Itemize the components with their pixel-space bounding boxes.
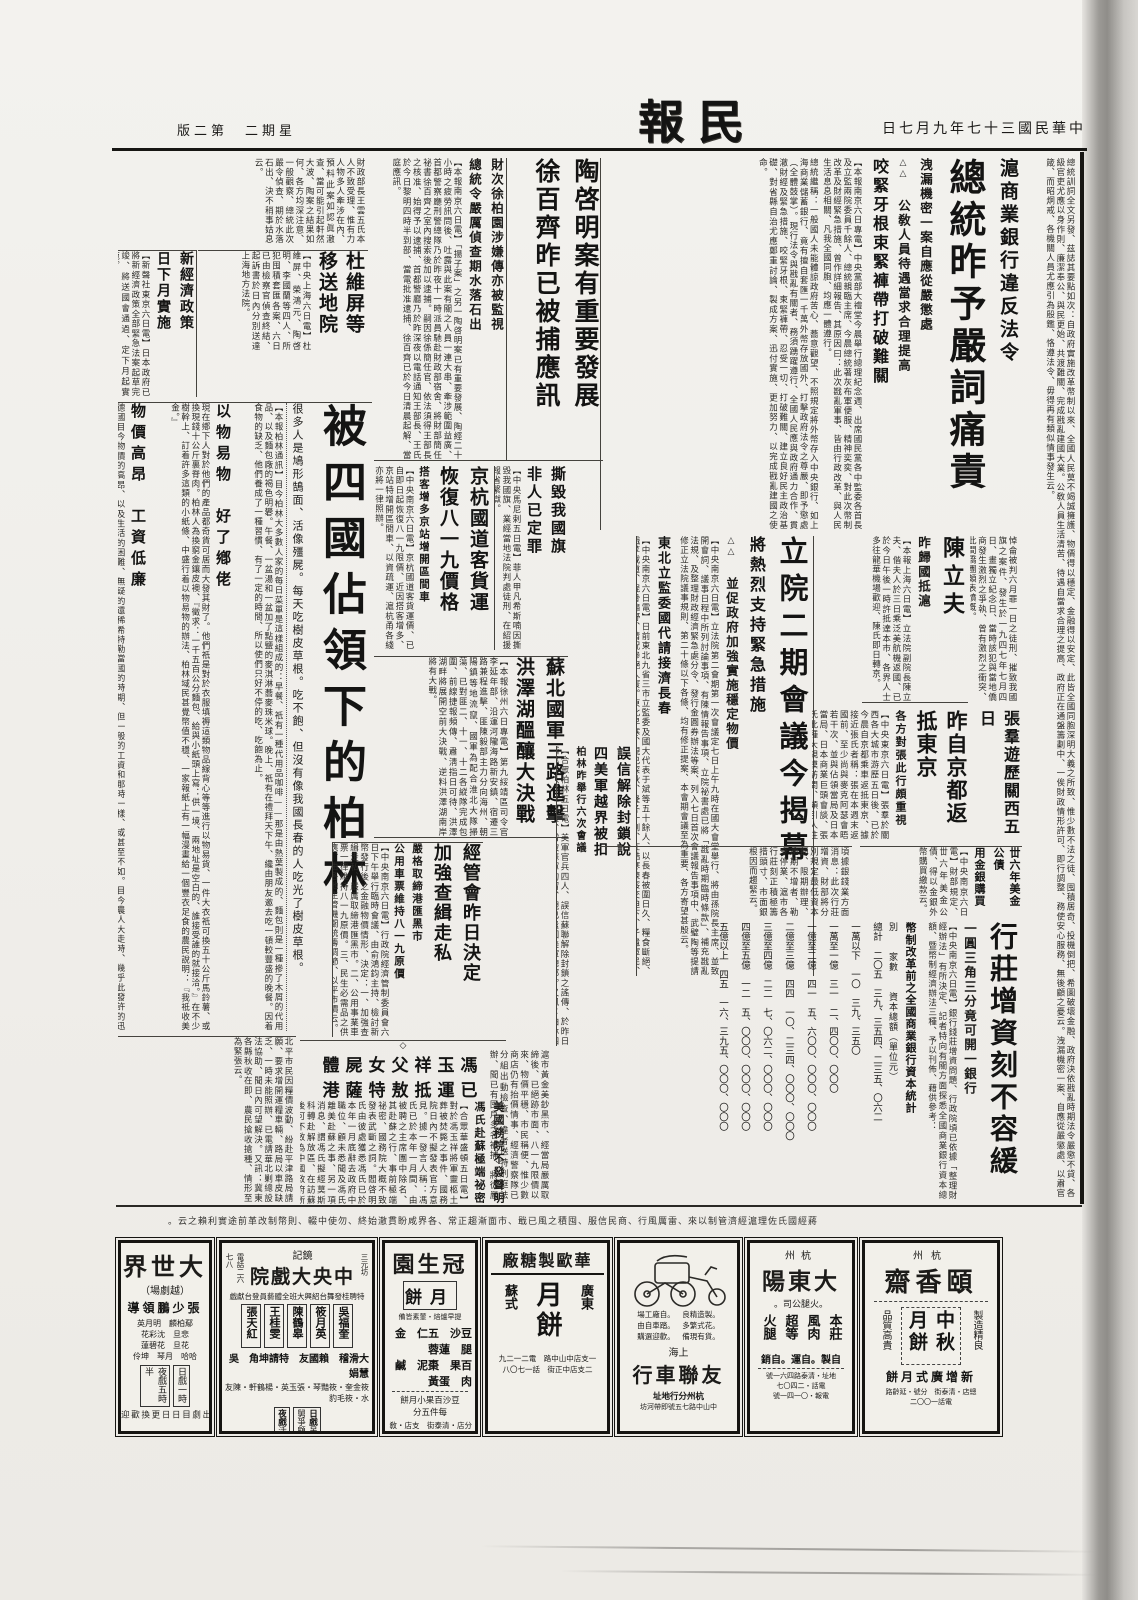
lead-headline: 總統昨予嚴詞痛責 xyxy=(938,158,992,530)
issue-date: 中華民國三十七年九月七日 xyxy=(880,118,1086,144)
zhongyang-night-label: 夜戲 xyxy=(277,1409,287,1426)
road-subhead: 搭客增多京站增開區間車 xyxy=(417,466,432,650)
du-article: 杜維屏等移送地院 【中央上海六日電】杜維屏、榮鴻元、陶啓明、李國蘭等四人、所犯囤… xyxy=(198,250,368,351)
japan-econ-body: 【新聲社東京六日電】日本政府已將新經濟政策全部緊急法案起草完竣、將送國會通過、定… xyxy=(120,251,150,397)
youlian-city: 上海 xyxy=(669,1344,689,1359)
bond-headline-1: 丗六年美金公債 xyxy=(990,847,1022,917)
dashijie-director: 張少鵬領導 xyxy=(127,1299,202,1316)
page-fold-shadow-2 xyxy=(560,1570,1100,1576)
du-body: 【中央上海六日電】杜維屏、榮鴻元、陶啓明、李國蘭等四人、所犯囤積套匯各案、六日已… xyxy=(215,251,311,351)
lead-kicker: 滬商業銀行違反法令 xyxy=(995,158,1022,530)
bond-article: 丗六年美金公債 用金銀購買 【中央南京六日電】財部規定、丗六年美金公債、得以金銀… xyxy=(860,846,1022,917)
bank-table-headers: 別 家數 資本總額（單位元） xyxy=(886,922,899,1200)
feng-headline-2: 已運抵敖特薩港 xyxy=(300,1076,506,1101)
bottom-rule xyxy=(116,1205,1082,1207)
zhongyang-day-cell: 日戲吊打國舅爭顧鼎臣 xyxy=(293,1407,321,1434)
zhongyang-header: 三元坊 鏡記 中央大戲院 電話二六七八 xyxy=(224,1247,370,1289)
subei-body: 【本報徐州六日專電】第九綏靖區司令官李延年部、沿運河隴海路新安鎮、宿遷三路兼程進… xyxy=(392,657,508,837)
bank-row-3: 一億至二億 四一 五、六〇〇、〇〇〇、〇〇〇 xyxy=(803,922,817,1200)
dadongyang-line: 自製。自運。自銷 xyxy=(761,1351,841,1366)
bank-table-title: 幣制改革前之全國商業銀行資本統計 xyxy=(902,922,918,1200)
bank-row-6: 四億至五億 一二 五、〇〇〇、〇〇〇、〇〇〇 xyxy=(737,922,751,1200)
feng-headline-1: 馮玉祥父女屍體 xyxy=(300,1051,506,1076)
zhongyang-special: 大滑稽 賴國友 特請坤角 吳慧娟 xyxy=(225,1350,369,1380)
smuggle-subhead-1: 嚴格取締港匯黑市 xyxy=(410,843,425,1037)
chen-article: 陳立夫 昨歸國抵滬 【本報上海六日電】立法院副院長陳立夫、偕夫人於三日乘泛美航機… xyxy=(862,536,968,703)
youlian-bullets-3: 。貨有現備 。歡迎選購 xyxy=(637,1331,720,1342)
dashijie-day-label: 日戲 xyxy=(176,1367,186,1385)
dadongyang-product-3: 超等 xyxy=(781,1314,800,1348)
dashijie-cast-3: 花旦 花碧蓮 xyxy=(141,1340,189,1351)
dashijie-cast-1: 鄢柏麟 明月英 xyxy=(137,1318,193,1329)
zhongyang-row3: 筱金奎・筱豔琴・張玉英・楊鶴軒・陳友水・筱毛豹 xyxy=(225,1382,369,1404)
huaou-middle: 廣東 月餅 蘇式 xyxy=(500,1281,595,1347)
lead-triangle-marks: △△ xyxy=(898,158,908,180)
dadongyang-subtitle: 。火腿公司。 xyxy=(774,1297,828,1310)
bank-article: 行莊增資刻不容緩 一圓三角三分竟可開一銀行 【中央南京六日電】銀行錢莊增資問題、… xyxy=(600,922,1022,1200)
dashijie-day-cell: 日戲一時 xyxy=(173,1365,190,1407)
flag-headline-1: 撕毀我國旗 xyxy=(548,466,569,650)
zhongyang-tag: 鏡記 xyxy=(250,1247,355,1262)
bank-pre-brief: 頃據銀錢業方面消息：此次行莊增資、財部將分別規定最低資本額、限期辦理、逾期不增者… xyxy=(600,846,852,917)
smuggle-subhead-2: 公用車票維持八一九原價 xyxy=(392,843,407,1037)
bank-row-4: 二億至三億 四四 一〇、二三四、〇〇〇、〇〇〇 xyxy=(781,922,795,1200)
ly-triangle-marks: △△ xyxy=(726,536,736,558)
yixiangzhai-middle: 製造精良 中秋月餅 品質高貴 xyxy=(878,1307,984,1365)
zhongyang-night-cell: 夜戲活財神 xyxy=(274,1407,290,1434)
dashijie-note: 本院演員自本日起出劇目日日更換歡迎各界人士蒞臨指敎 xyxy=(118,1410,212,1427)
topleft-brief: 財政部長王雲五氏本人不致受理、惟有力人物多人牽涉在內、預料此案如認眞澈查、當可能… xyxy=(118,158,368,244)
dadongyang-products: 本莊 風肉 超等 火腿 xyxy=(759,1314,844,1348)
chen-side-text: 悼侖被判六月罪一日之徒刑、摧致我國旗之案件、發生於一九四七年七月四日、畫獨立紀念… xyxy=(970,536,1017,702)
zhongyang-stars: 吳福奎 筱月英 陳鶴皋 王桂雯 張天紅 xyxy=(241,1304,353,1348)
bottomleft-brief: 北平市民因糧價波動、紛赴平津路局請願、要求增開運糧車輛、路局以車皮缺乏、一時未能… xyxy=(118,1036,296,1203)
chen-side-brief: 悼侖被判六月罪一日之徒刑、摧致我國旗之案件、發生於一九四七年七月四日、畫獨立紀念… xyxy=(970,536,1020,702)
huaou-branch-2: 二支店中正街 話一七〇八 xyxy=(503,1364,593,1375)
ad-dadongyang: 杭州 大東陽 。火腿公司。 本莊 風肉 超等 火腿 自製。自運。自銷 地址・清泰… xyxy=(747,1240,855,1434)
dadongyang-phone: 電話・二四〇七 xyxy=(777,1381,826,1391)
dadongyang-product-2: 風肉 xyxy=(803,1314,822,1348)
smuggle-headline-2: 加強查緝走私 xyxy=(428,843,454,1037)
huaou-product: 月餅 xyxy=(529,1281,566,1347)
japan-economy-article: 新經濟政策 日下月實施 【新聲社東京六日電】日本政府已將新經濟政策全部緊急法案起… xyxy=(118,250,197,397)
smuggle-body: 【中央南京六日電】行政院經濟管制委員會六日下午舉行臨時會議、由俞鴻鈞主持、檢討新… xyxy=(347,843,389,1037)
flag-headline-2: 非人已定罪 xyxy=(524,466,545,650)
road-body: 【中央南京六日電】京杭國道客貨運價、已自即日起恢復八一九限價、近因搭客增多、京站… xyxy=(380,466,414,650)
zhongyang-star-2: 筱月英 xyxy=(310,1304,330,1348)
zhongyang-phone: 電話二六七八 xyxy=(224,1253,246,1283)
youlian-bullets-1: 。製造精良 。自廠工場 xyxy=(637,1309,720,1320)
du-headline: 杜維屏等移送地院 xyxy=(314,251,368,351)
newspaper-page: 中華民國三十七年九月七日 民報 星期二 第二版 總統訓詞全文另發、茲誌其要點如次… xyxy=(0,0,1138,1600)
lead-subhead-1: 洩漏機密一案自應從嚴懲處 xyxy=(916,158,935,530)
youlian-footer-1: 杭州分行地址 xyxy=(653,1390,704,1402)
berlin4-subhead: 柏林昨舉行六次會議 xyxy=(572,746,587,1046)
bottom-strip-text: 蔣經國氏佐理滬經濟管制以來、雷厲風行、商民信服、囤積之風已戢、市面漸趨正常、各界… xyxy=(118,1214,818,1234)
bank-headline: 行莊增資刻不容緩 xyxy=(982,922,1022,1200)
flag-article: 撕毀我國旗 非人已定罪 【中央馬尼剌五日電】菲人甲凡希斯喃因撕毀我國旗、業經當地… xyxy=(494,466,569,650)
feng-subhead-1: 美國務院不發聲明 xyxy=(490,1101,506,1205)
guanshengyuan-price: 每件五分 xyxy=(413,1406,447,1418)
guanshengyuan-product: 月餅 xyxy=(403,1281,457,1310)
guanshengyuan-branches: 分店・清泰街 支店・敎仁橋 xyxy=(388,1420,472,1434)
ly-subhead-2: 並促政府加強實施穩定物價 xyxy=(724,577,739,751)
dadongyang-name: 大東陽 xyxy=(762,1262,840,1296)
berlin-body-3: 德國目今物價的高昂、以及生活的困難、無疑的還稀希特勒當國的時期、但一般的工資和那… xyxy=(118,403,125,1031)
yixiangzhai-bottom: 新增廣式月餅 xyxy=(886,1368,976,1385)
yixiangzhai-right-tag: 製造精良 xyxy=(969,1310,984,1362)
chen-body: 【本報上海六日電】立法院副院長陳立夫、偕夫人於三日乘泛美航機返國、已於今日午後一… xyxy=(865,536,911,702)
berlin-subhead-b: 物價高昂 工資低廉 xyxy=(128,403,149,1031)
dashijie-cast-2: 悲旦 沈彩花 xyxy=(141,1329,189,1340)
lead-body-2: 總統繼稱：一般國人未能體諒政府苦心、蕎意觀望、不照規定將外幣存入中央銀行、如上海… xyxy=(757,158,818,530)
berlin-body-1: 【本報柏林通訊】目今柏林大多數人家的每日菜單是這樣組成的：早餐、祇有一種代用品咖… xyxy=(237,403,283,1031)
yixiangzhai-left-tag: 品質高貴 xyxy=(878,1310,893,1362)
road-headline-2: 恢復八一九價格 xyxy=(435,466,462,650)
dadongyang-addr: 地址・清泰路四六一號 xyxy=(766,1371,836,1381)
tao-subhead-1: 財次徐柏園涉嫌傳亦被監視 xyxy=(487,158,506,460)
yixiangzhai-region: 杭州 xyxy=(913,1247,949,1262)
dadongyang-divider xyxy=(758,1368,844,1369)
huaou-style-2: 蘇式 xyxy=(500,1284,519,1344)
zhongyang-star-5: 張天紅 xyxy=(241,1304,261,1348)
bank-body: 【中央南京六日電】銀行錢莊增資問題、行政院頃已依據「整理財經辦法」有所決定、記者… xyxy=(921,922,957,1200)
lead-body: 【本報南京六日專電】中央黨部大禮堂今晨舉行總理紀念週、出席國民黨各中監委各首長及… xyxy=(600,158,865,530)
zhang-headline-1: 張羣遊歷關西五日 xyxy=(974,710,1022,840)
lead-subhead-3: 咬緊牙根束緊褲帶打破難關 xyxy=(868,158,891,530)
tao-article-heads: 陶啓明案有重要發展 徐百齊昨已被捕應訊 xyxy=(506,158,603,461)
chen-subhead: 昨歸國抵滬 xyxy=(914,536,933,702)
dadongyang-region: 杭州 xyxy=(785,1247,817,1262)
guanshengyuan-small-cake: 豆沙百果小月餅 xyxy=(400,1394,460,1406)
dadongyang-wire: 電報・〇一四一號 xyxy=(773,1391,829,1401)
lead-subhead-2-col: △△ 公敎人員待遇當求合理提高 xyxy=(894,158,913,530)
yixiangzhai-footer-1: 總店・清泰街 分號・延齡路 xyxy=(886,1387,977,1397)
japan-econ-headline-1: 新經濟政策 xyxy=(176,251,196,397)
bank-row-total: 總計 二〇五 三九、三五四、二三五、〇六二 xyxy=(869,922,883,1200)
dadongyang-product-4: 火腿 xyxy=(759,1314,778,1348)
zhongyang-star-3: 陳鶴皋 xyxy=(287,1304,307,1348)
feng-subhead-2: 馮氏赴蘇極端祕密 xyxy=(471,1101,487,1205)
dashijie-cast-4: 哈哈 月琴 坤伶 xyxy=(133,1351,197,1362)
topleft-brief-text: 財政部長王雲五氏本人不致受理、惟有力人物多人牽涉在內、預料此案如認眞澈查、當可能… xyxy=(253,158,365,244)
yixiangzhai-product: 中秋月餅 xyxy=(901,1307,961,1365)
subei-headline-2: 洪澤湖醞釀大決戰 xyxy=(511,657,538,837)
zhongyang-night-show: 活財神 xyxy=(277,1426,287,1434)
youlian-footer-2: 中山中路七五號即帶河坊 xyxy=(640,1402,717,1412)
yixiangzhai-name: 頤香齋 xyxy=(884,1262,977,1299)
bank-row-5: 三億至四億 二二 七、〇六二、〇〇〇、〇〇〇 xyxy=(759,922,773,1200)
japan-econ-headline-2: 日下月實施 xyxy=(153,251,173,397)
lead-story-strip: 總統訓詞全文另發、茲誌其要點如次：自政府實施改革幣制以來、全國人民莫不竭誠擁護、… xyxy=(1024,158,1078,1198)
dashijie-day-time: 一時 xyxy=(176,1385,186,1403)
ad-youlian: 。製造精良 。自廠工場 。花式繁多 。踏車自由 。貨有現備 。歡迎選購 上海 友… xyxy=(617,1240,740,1434)
weekday-edition: 星期二 第二版 xyxy=(116,120,296,144)
zhongyang-day-label: 日戲 xyxy=(308,1409,318,1426)
ad-guanshengyuan: 冠生園 月餅 提早爐焙・葷素皆備 豆沙 五仁 金腿 蓮蓉 百果 棗泥 鹹肉 蛋黃… xyxy=(382,1240,478,1434)
chen-headline: 陳立夫 xyxy=(936,536,968,702)
dashijie-name: 大世界 xyxy=(123,1247,207,1282)
huaou-name: 華歐製糖廠 xyxy=(491,1247,604,1275)
lead-body-1: 【本報南京六日專電】中央黨部大禮堂今晨舉行總理紀念週、出席國民黨各中監委各首長及… xyxy=(821,158,862,530)
huaou-branch-1: 一支店中山中路 電二一二九 xyxy=(499,1353,597,1364)
zhongyang-star-4: 王桂雯 xyxy=(264,1304,284,1348)
ad-huaou: 華歐製糖廠 廣東 月餅 蘇式 一支店中山中路 電二一二九 二支店中正街 話一七〇… xyxy=(485,1240,610,1434)
zhongyang-shows: 日戲吊打國舅爭顧鼎臣 夜戲活財神 xyxy=(274,1407,321,1434)
dashijie-night-label: 夜戲 xyxy=(156,1367,166,1385)
feng-article: ◇ 馮玉祥父女屍體 已運抵敖特薩港 美國務院不發聲明 馮氏赴蘇極端祕密 【合眾華… xyxy=(300,1040,506,1205)
lead-article: 滬商業銀行違反法令 總統昨予嚴詞痛責 洩漏機密一案自應從嚴懲處 △△ 公敎人員待… xyxy=(868,158,1022,530)
bond-body: 【中央南京六日電】財部規定、丗六年美金公債、得以金銀外幣購買繳款云。 xyxy=(860,847,968,917)
smuggle-article: 經管會昨日決定 加強查緝走私 嚴格取締港匯黑市 公用車票維持八一九原價 【中央南… xyxy=(332,842,483,1037)
feng-lower: 美國務院不發聲明 馮氏赴蘇極端祕密 【合眾華盛頓五日電】對於馮玉祥將軍靈柩土葬被… xyxy=(300,1101,506,1205)
tao-headline-2: 徐百齊昨已被捕應訊 xyxy=(528,158,564,460)
zhang-subhead: 各方對張此行頗重視 xyxy=(892,710,908,840)
bank-pre-text: 頃據銀錢業方面消息：此次行莊增資、財部將分別規定最低資本額、限期辦理、逾期不增者… xyxy=(747,847,849,917)
guanshengyuan-divider xyxy=(392,1391,468,1392)
bank-row-1: 一萬以下 一〇 三九、三五〇 xyxy=(847,922,861,1200)
flag-body: 【中央馬尼剌五日電】菲人甲凡希斯喃因撕毀我國旗、業經當地法院判處徒刑、在紹援報省… xyxy=(494,466,521,650)
zhongyang-address: 三元坊 xyxy=(359,1253,370,1283)
berlin-lede: 很多人是鳩形鵠面、活像殭屍。每天吃樹皮草根。吃不飽、但沒有像我國長春的人吃光了樹… xyxy=(286,403,305,1031)
dashijie-subtitle: （越劇場） xyxy=(140,1282,190,1297)
lead-subhead-2: 公敎人員待遇當求合理提高 xyxy=(896,199,911,373)
zhongyang-star-1: 吳福奎 xyxy=(333,1304,353,1348)
bank-subhead: 一圓三角三分竟可開一銀行 xyxy=(960,922,979,1200)
zhang-headline-2: 昨自京都返抵東京 xyxy=(911,710,971,840)
ad-yixiangzhai: 杭州 頤香齋 製造精良 中秋月餅 品質高貴 新增廣式月餅 總店・清泰街 分號・延… xyxy=(862,1240,1000,1434)
huaou-style-1: 廣東 xyxy=(576,1284,595,1344)
feng-diamond-top: ◇ xyxy=(300,1041,506,1051)
feng-body: 【合眾華盛頓五日電】對於馮玉祥將軍靈柩土葬被焚斃之事件、國務院日內不擬發表官方意… xyxy=(328,1101,468,1205)
masthead: 民報 xyxy=(608,86,788,146)
yixiangzhai-footer-2: 電話一〇〇二 xyxy=(910,1397,952,1407)
advertisement-row: 大世界 （越劇場） 張少鵬領導 鄢柏麟 明月英 悲旦 沈彩花 花旦 花碧蓮 哈哈… xyxy=(118,1240,1016,1434)
tao-subhead-2: 總統令嚴厲偵查期水落石出 xyxy=(465,158,484,460)
page-fold-shadow-1 xyxy=(480,1545,1100,1552)
tricycle-illustration xyxy=(627,1247,731,1309)
ad-zhongyang-theater: 三元坊 鏡記 中央大戲院 電話二六七八 特聘桂發舞台紹興大班全體藝員登台獻戲 吳… xyxy=(219,1240,375,1434)
zhang-article: 張羣遊歷關西五日 昨自京都返抵東京 各方對張此行頗重視 【中央東京六日電】張羣於… xyxy=(812,710,1022,840)
smuggle-headline-1: 經管會昨日決定 xyxy=(457,843,483,1037)
road-article: 京杭國道客貨運 恢復八一九價格 搭客增多京站增開區間車 【中央南京六日電】京杭國… xyxy=(374,466,492,650)
guanshengyuan-name: 冠生園 xyxy=(392,1247,467,1279)
road-headline-1: 京杭國道客貨運 xyxy=(465,466,492,650)
guanshengyuan-items-2: 百果 棗泥 鹹肉 蛋黃 xyxy=(388,1357,472,1389)
tao-body: 【本報南京六日電】「揚子案」之另一陶啓明案已有重要發展、陶經二十小時之疲勞訊問後… xyxy=(388,158,462,460)
berlin-body-2: 現在鄕下人對於他們的產品都奇貨可居而大發其財了。他們祇是對於衣服填褥這類物品線背… xyxy=(152,403,210,1031)
guanshengyuan-tagline: 提早爐焙・葷素皆備 xyxy=(399,1312,462,1322)
youlian-name: 友聯車行 xyxy=(633,1359,725,1388)
dashijie-night-cell: 夜戲五時半 xyxy=(140,1365,170,1407)
zhongyang-name: 中央大戲院 xyxy=(250,1262,355,1289)
zhang-body: 【中央東京六日電】張羣於關西各大城市游歷五日後、已於今晨自京都乘車返抵東京、據接… xyxy=(812,710,889,840)
tao-headline-1: 陶啓明案有重要發展 xyxy=(567,158,603,460)
header-rule xyxy=(112,148,1087,151)
lead-strip-text: 總統訓詞全文另發、茲誌其要點如次：自政府實施改革幣制以來、全國人民莫不竭誠擁護、… xyxy=(1044,158,1075,1198)
right-border-rule xyxy=(1080,152,1084,1204)
berlin-subhead-a: 以物易物 好了鄕佬 xyxy=(213,403,234,1031)
yixiangzhai-divider xyxy=(874,1301,987,1302)
dadongyang-product-1: 本莊 xyxy=(825,1314,844,1348)
bond-headline-2: 用金銀購買 xyxy=(971,847,987,917)
youlian-bullets-2: 。花式繁多 。踏車自由 xyxy=(637,1320,720,1331)
page-edge-shading xyxy=(1082,0,1138,1600)
subei-article: 蘇北國軍三路進擊 洪澤湖醞釀大決戰 【本報徐州六日專電】第九綏靖區司令官李延年部… xyxy=(374,656,568,838)
bank-row-2: 一萬至一億 三一 二、四〇〇、〇〇〇 xyxy=(825,922,839,1200)
bottomleft-text: 北平市民因糧價波動、紛赴平津路局請願、要求增開運糧車輛、路局以車皮缺乏、一時未能… xyxy=(232,1037,293,1203)
guanshengyuan-items-1: 豆沙 五仁 金腿 蓮蓉 xyxy=(388,1325,472,1357)
zhongyang-banner: 特聘桂發舞台紹興大班全體藝員登台獻戲 xyxy=(230,1291,365,1302)
tao-article-body: 財次徐柏園涉嫌傳亦被監視 總統令嚴厲偵查期水落石出 【本報南京六日電】「揚子案」… xyxy=(374,158,506,461)
dashijie-schedule: 日戲一時 夜戲五時半 xyxy=(140,1365,190,1407)
berlin4-body: 【合眾柏林五日電】美軍官兵四人、誤信蘇聯解除封鎖之謠傳、於昨日越界進入蘇軍防區、… xyxy=(556,746,569,1046)
ad-dashijie: 大世界 （越劇場） 張少鵬領導 鄢柏麟 明月英 悲旦 沈彩花 花旦 花碧蓮 哈哈… xyxy=(118,1240,212,1434)
bank-row-7: 五億以上 四五 一六、三九五、〇〇〇、〇〇〇 xyxy=(715,922,729,1200)
